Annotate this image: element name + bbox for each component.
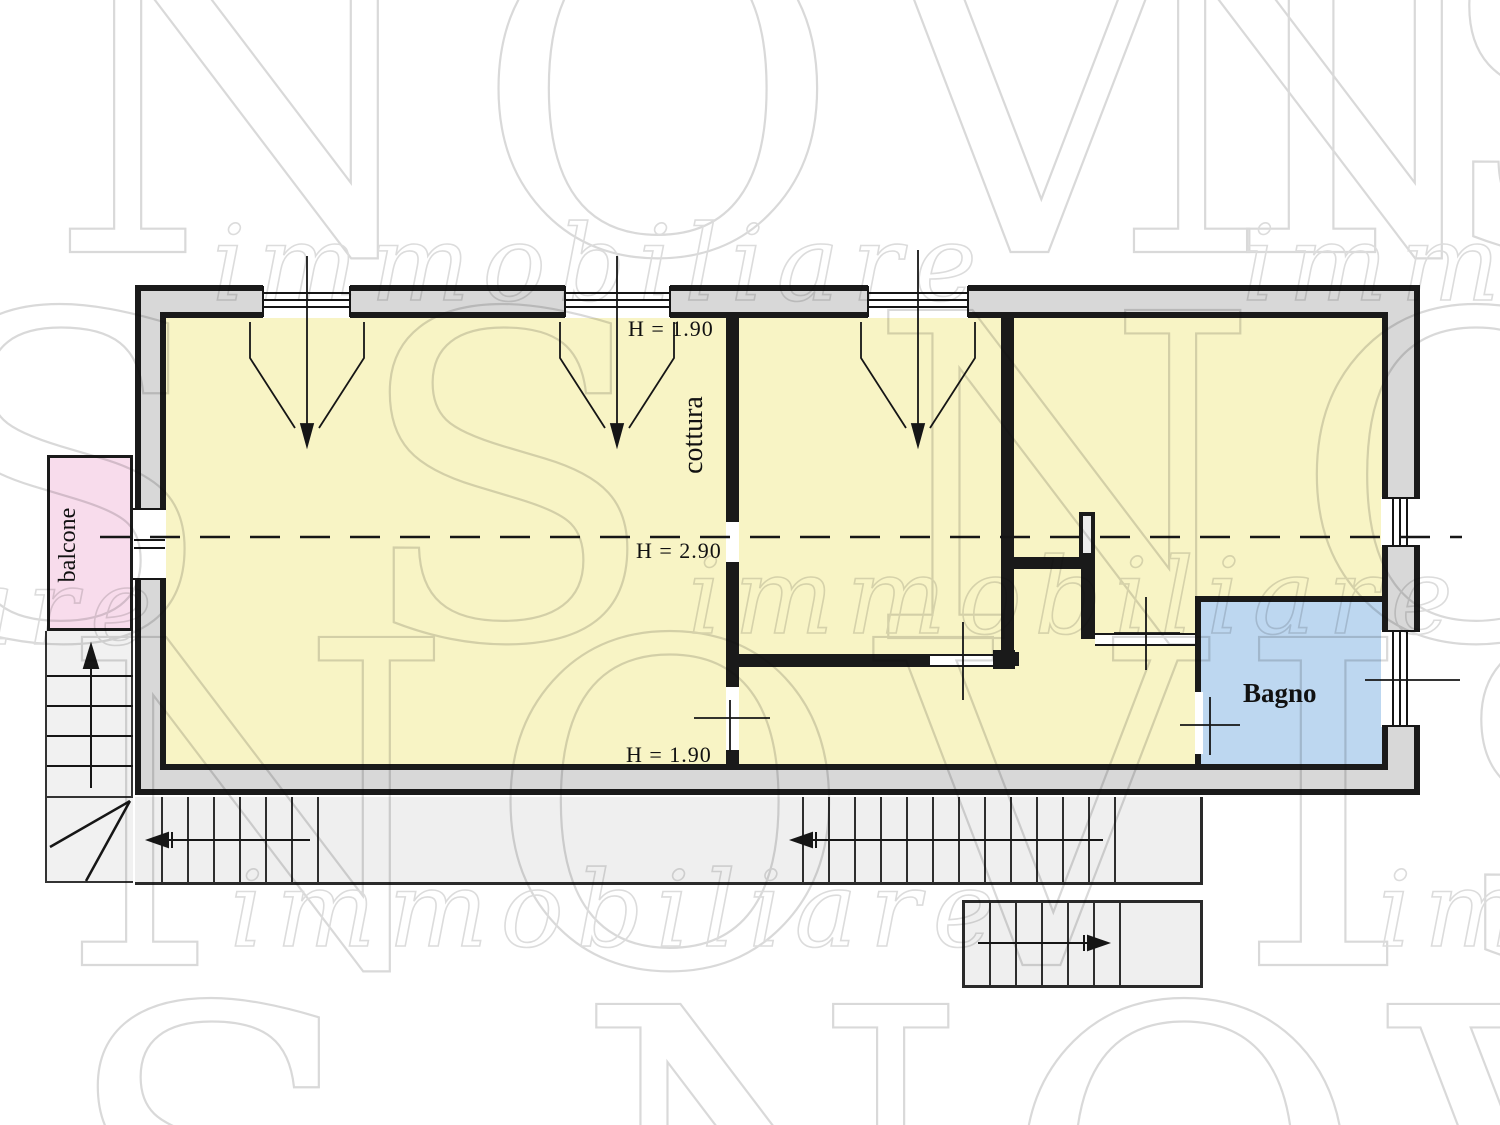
label-kitchen: cottura <box>678 370 718 500</box>
wall-middle-right-foot <box>996 652 1019 666</box>
watermark-text: NO <box>1112 0 1500 322</box>
window-right-1 <box>1381 497 1420 547</box>
door-gap-left-room-lower <box>726 687 739 750</box>
window-top-3 <box>868 285 968 318</box>
stairs-lower-right-treads <box>965 903 1121 985</box>
door-gap-left-room-upper <box>726 522 739 562</box>
wall-middle-right-divider <box>1001 312 1014 658</box>
watermark-text: S NOVIS <box>60 952 1500 1125</box>
wall-corridor-vertical <box>1081 569 1095 639</box>
stairs-left-treads <box>45 631 133 796</box>
floorplan-canvas: H = 1.90 H = 2.90 H = 1.90 cottura Bagno… <box>0 0 1500 1125</box>
stairs-left-landing <box>45 796 133 883</box>
window-right-bathroom <box>1381 630 1420 727</box>
window-top-1 <box>263 285 350 318</box>
label-height-upper: H = 1.90 <box>628 316 714 342</box>
stairs-bottom-middle-treads <box>778 797 1119 883</box>
door-opening-middle-room <box>930 654 993 667</box>
watermark-text: NOVIS <box>48 0 1500 322</box>
label-height-middle: H = 2.90 <box>636 538 722 564</box>
wall-corridor-horizontal <box>1013 557 1095 569</box>
balcony-door-opening <box>133 508 166 580</box>
stairs-bottom-left-treads <box>137 797 327 883</box>
label-bathroom: Bagno <box>1243 678 1317 709</box>
wall-corridor-stub-notch <box>1083 516 1091 553</box>
label-height-lower: H = 1.90 <box>626 742 712 768</box>
wall-middle-room-partition <box>739 654 930 667</box>
window-top-2 <box>565 285 670 318</box>
label-balcony: balcone <box>55 490 85 600</box>
bathroom-door-gap <box>1195 692 1203 754</box>
door-opening-corridor <box>1095 633 1195 646</box>
watermark-script-text: imm <box>1378 858 1500 963</box>
